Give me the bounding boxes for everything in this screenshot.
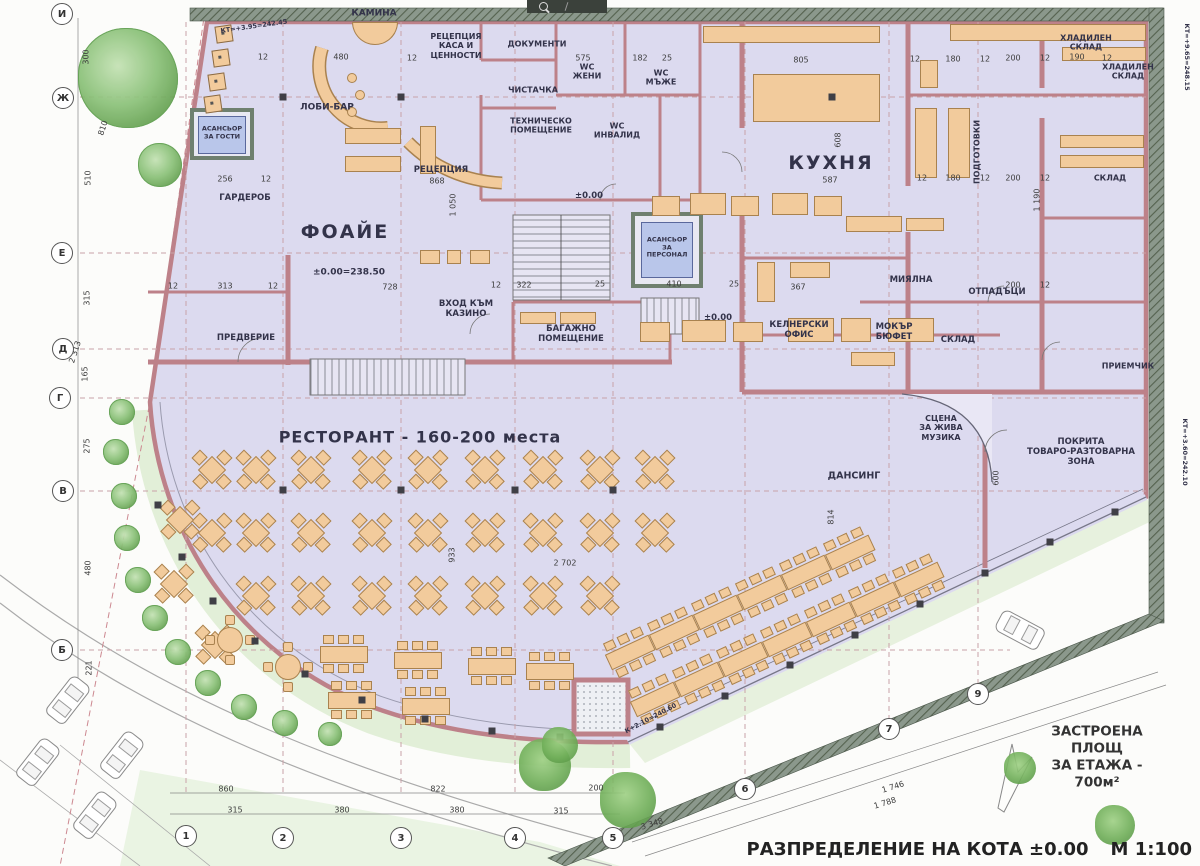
label-tech-room: ТЕХНИЧЕСКО ПОМЕЩЕНИЕ bbox=[510, 117, 572, 136]
label-cold-store-2: ХЛАДИЛЕН СКЛАД bbox=[1102, 63, 1154, 82]
label-k-terrace: К+2.10=240.60 bbox=[624, 702, 678, 736]
label-staff-elevator: АСАНСЬОР ЗА ПЕРСОНАЛ bbox=[647, 237, 688, 260]
label-lobby-bar: ЛОБИ-БАР bbox=[300, 103, 354, 114]
label-foyer: ФОАЙЕ bbox=[301, 221, 390, 243]
label-wc-disabled: WC ИНВАЛИД bbox=[594, 122, 640, 141]
label-wc-women: WC ЖЕНИ bbox=[573, 63, 602, 82]
floor-plan-canvas: 3008105103151652754802212 31312480125751… bbox=[0, 0, 1200, 866]
label-casino-entrance: ВХОД КЪМ КАЗИНО bbox=[439, 299, 493, 319]
label-kt-top-left: КТ=+3.95=242.45 bbox=[220, 19, 288, 36]
label-cleaner: ЧИСТАЧКА bbox=[508, 85, 558, 94]
sheet-title-text: РАЗПРЕДЕЛЕНИЕ НА КОТА ±0.00 bbox=[747, 839, 1089, 860]
label-cold-store-1: ХЛАДИЛЕН СКЛАД bbox=[1060, 34, 1112, 53]
label-level-foyer: ±0.00 bbox=[704, 313, 732, 323]
label-foyer-level: ±0.00=238.50 bbox=[313, 268, 385, 279]
label-luggage-room: БАГАЖНО ПОМЕЩЕНИЕ bbox=[538, 324, 604, 344]
label-waste: ОТПАДЪЦИ bbox=[968, 287, 1025, 297]
label-guest-elevator: АСАНСЬОР ЗА ГОСТИ bbox=[202, 125, 242, 140]
toolbar-divider bbox=[565, 2, 569, 11]
label-receiving: ПРИЕМЧИК bbox=[1102, 361, 1154, 370]
sheet-title: РАЗПРЕДЕЛЕНИЕ НА КОТА ±0.00М 1:100 bbox=[747, 839, 1192, 860]
label-wc-men: WC МЪЖЕ bbox=[646, 69, 677, 88]
label-prep: ПОДГОТОВКИ bbox=[972, 120, 981, 184]
label-kt-right-top: КТ=+9.65=248.15 bbox=[1182, 23, 1190, 90]
label-dishwashing: МИЯЛНА bbox=[890, 275, 933, 285]
label-loading-zone: ПОКРИТА ТОВАРО-РАЗТОВАРНА ЗОНА bbox=[1027, 437, 1135, 467]
label-wardrobe: ГАРДЕРОБ bbox=[219, 193, 271, 203]
viewer-toolbar[interactable] bbox=[527, 0, 607, 13]
label-waiter-office: КЕЛНЕРСКИ ОФИС bbox=[769, 320, 828, 340]
labels-layer: КАМИНАРЕЦЕПЦИЯ КАСА И ЦЕННОСТИДОКУМЕНТИЧ… bbox=[0, 0, 1200, 866]
label-restaurant: РЕСТОРАНТ - 160-200 места bbox=[279, 429, 562, 448]
magnifier-icon[interactable] bbox=[539, 2, 548, 11]
label-reception-cash: РЕЦЕПЦИЯ КАСА И ЦЕННОСТИ bbox=[430, 32, 481, 60]
label-store-mid: СКЛАД bbox=[941, 335, 975, 345]
sheet-scale: М 1:100 bbox=[1111, 839, 1192, 860]
label-reception: РЕЦЕПЦИЯ bbox=[414, 165, 468, 175]
label-dance-floor: ДАНСИНГ bbox=[828, 470, 881, 481]
label-vestibule: ПРЕДВЕРИЕ bbox=[217, 333, 275, 343]
label-store-right: СКЛАД bbox=[1094, 173, 1126, 182]
label-wet-buffet: МОКЪР БЮФЕТ bbox=[876, 322, 913, 342]
label-stage: СЦЕНА ЗА ЖИВА МУЗИКА bbox=[919, 414, 962, 442]
label-kt-right-low: КТ=+3.60=242.10 bbox=[1180, 418, 1188, 485]
label-documents: ДОКУМЕНТИ bbox=[508, 39, 567, 48]
label-fireplace: КАМИНА bbox=[351, 9, 396, 20]
built-area-note: ЗАСТРОЕНА ПЛОЩ ЗА ЕТАЖА - 700м² bbox=[1046, 723, 1149, 791]
label-kitchen: КУХНЯ bbox=[788, 152, 873, 174]
label-level-main: ±0.00 bbox=[575, 191, 603, 201]
